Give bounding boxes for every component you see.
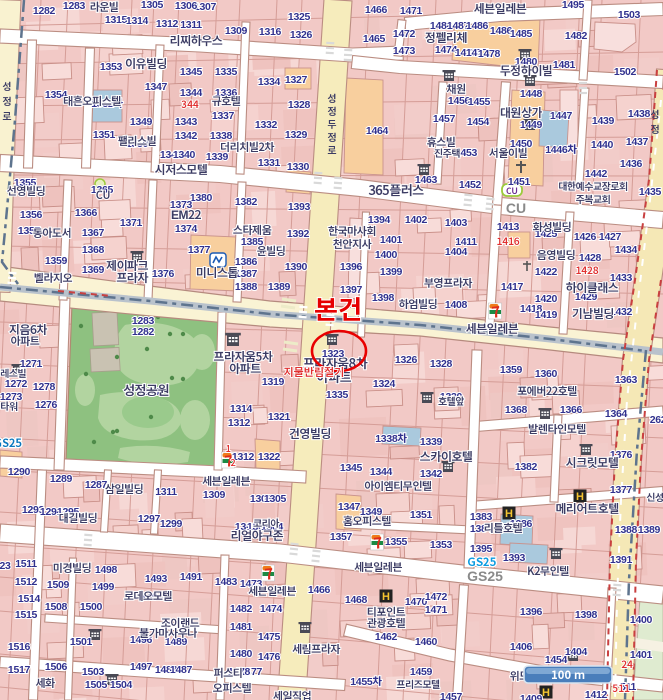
svg-text:2: 2 [230, 456, 235, 469]
svg-text:1311: 1311 [155, 486, 177, 498]
svg-text:1404: 1404 [445, 246, 468, 258]
svg-text:1382: 1382 [235, 196, 258, 208]
svg-text:포에버22호텔: 포에버22호텔 [517, 383, 577, 399]
svg-text:1338차: 1338차 [375, 433, 407, 445]
svg-text:1335: 1335 [326, 389, 349, 401]
svg-text:1393: 1393 [288, 201, 311, 213]
svg-text:1462: 1462 [375, 631, 398, 643]
svg-text:1391: 1391 [610, 554, 633, 566]
svg-text:1417: 1417 [501, 281, 524, 293]
svg-text:아이엠티무인텔: 아이엠티무인텔 [364, 478, 432, 494]
svg-text:프리즈모텔: 프리즈모텔 [396, 676, 440, 691]
svg-text:1464: 1464 [366, 125, 389, 137]
svg-text:홈오피스텔: 홈오피스텔 [343, 513, 391, 529]
svg-text:GS25: GS25 [0, 435, 22, 451]
svg-text:아파트: 아파트 [11, 333, 40, 349]
svg-text:1434: 1434 [615, 244, 638, 256]
svg-text:1408: 1408 [445, 299, 468, 311]
svg-text:1315: 1315 [105, 14, 128, 26]
svg-text:1398: 1398 [575, 609, 598, 621]
svg-text:1482: 1482 [565, 30, 588, 42]
svg-text:팰리스빌: 팰리스빌 [118, 133, 157, 149]
svg-text:주복교회: 주복교회 [576, 191, 611, 206]
svg-text:1364: 1364 [605, 408, 628, 420]
svg-text:1: 1 [225, 442, 230, 455]
svg-text:1349: 1349 [130, 116, 153, 128]
svg-text:1404: 1404 [565, 646, 588, 658]
svg-text:발렌타인모텔: 발렌타인모텔 [528, 421, 586, 437]
svg-text:EM22: EM22 [171, 206, 201, 223]
svg-text:1400: 1400 [630, 614, 653, 626]
svg-text:1483: 1483 [215, 576, 238, 588]
svg-text:신성: 신성 [646, 489, 663, 504]
svg-text:1366: 1366 [75, 207, 98, 219]
svg-text:1438: 1438 [628, 108, 651, 120]
svg-text:1305: 1305 [141, 0, 164, 11]
svg-text:서울이빌: 서울이빌 [489, 145, 528, 161]
svg-text:1366: 1366 [560, 404, 583, 416]
svg-text:1290: 1290 [8, 466, 31, 478]
svg-text:더리치빌2차: 더리치빌2차 [220, 139, 275, 155]
svg-text:1396: 1396 [520, 606, 543, 618]
svg-text:동아도서: 동아도서 [33, 225, 71, 241]
svg-text:스카이호텔: 스카이호텔 [420, 448, 473, 465]
svg-text:1327: 1327 [285, 74, 308, 86]
svg-text:화성빌딩: 화성빌딩 [533, 219, 572, 235]
svg-text:1307: 1307 [194, 1, 217, 13]
svg-text:1466: 1466 [365, 4, 388, 16]
svg-text:511: 511 [612, 680, 629, 695]
svg-text:시저스모텔: 시저스모텔 [154, 161, 208, 178]
svg-text:1328: 1328 [430, 358, 453, 370]
svg-text:1435: 1435 [639, 186, 662, 198]
svg-text:1455: 1455 [468, 96, 491, 108]
svg-text:대길빌딩: 대길빌딩 [59, 510, 98, 526]
svg-text:1448: 1448 [520, 88, 543, 100]
svg-text:세븐일레븐: 세븐일레븐 [202, 473, 250, 489]
svg-text:1474: 1474 [260, 603, 283, 615]
svg-text:1326: 1326 [290, 29, 313, 41]
svg-text:지물반림절기: 지물반림절기 [284, 364, 345, 380]
svg-text:1493: 1493 [145, 573, 168, 585]
svg-text:1305: 1305 [264, 493, 287, 505]
svg-text:시크릿모텔: 시크릿모텔 [565, 454, 619, 471]
svg-text:262: 262 [650, 414, 663, 426]
svg-text:1374: 1374 [175, 223, 198, 235]
svg-text:1485: 1485 [510, 28, 533, 40]
svg-text:1309: 1309 [203, 489, 226, 501]
svg-text:1382: 1382 [515, 461, 538, 473]
svg-text:1426: 1426 [574, 231, 597, 243]
svg-text:1312: 1312 [156, 18, 179, 30]
svg-text:1312: 1312 [228, 417, 251, 429]
svg-text:1314: 1314 [230, 403, 253, 415]
svg-text:1329: 1329 [285, 129, 308, 141]
svg-text:1457: 1457 [433, 113, 456, 125]
svg-text:1416: 1416 [496, 233, 520, 248]
svg-text:1359: 1359 [500, 364, 523, 376]
svg-text:1475: 1475 [258, 631, 281, 643]
svg-text:1353: 1353 [430, 539, 453, 551]
svg-text:1478: 1478 [478, 48, 501, 60]
svg-text:1515: 1515 [15, 609, 38, 621]
svg-text:1398: 1398 [372, 292, 395, 304]
svg-text:성정공원: 성정공원 [123, 380, 169, 399]
svg-text:정: 정 [650, 121, 659, 136]
svg-text:하엄빌딩: 하엄빌딩 [399, 296, 438, 312]
svg-text:1347: 1347 [145, 81, 168, 93]
svg-text:1486: 1486 [466, 20, 489, 32]
svg-text:1371: 1371 [120, 217, 143, 229]
svg-text:1447: 1447 [550, 110, 573, 122]
svg-text:1363: 1363 [615, 374, 638, 386]
svg-text:1388: 1388 [235, 281, 258, 293]
svg-text:1436: 1436 [620, 158, 643, 170]
svg-text:코리아: 코리아 [253, 515, 280, 530]
svg-text:1465: 1465 [363, 33, 386, 45]
svg-text:CU: CU [96, 187, 111, 203]
svg-text:세림프라자: 세림프라자 [292, 641, 341, 657]
svg-text:1427: 1427 [599, 231, 622, 243]
svg-text:1500: 1500 [80, 601, 103, 613]
svg-text:태흔오피스텔: 태흔오피스텔 [63, 93, 121, 109]
svg-text:1482: 1482 [230, 603, 253, 615]
svg-text:1514: 1514 [18, 593, 41, 605]
svg-text:1355: 1355 [385, 536, 408, 548]
svg-text:아파트: 아파트 [229, 360, 261, 377]
svg-text:레스빌: 레스빌 [0, 365, 26, 380]
svg-text:세븐일레븐: 세븐일레븐 [354, 559, 402, 575]
svg-text:1342: 1342 [175, 130, 198, 142]
svg-text:1323: 1323 [322, 348, 345, 360]
svg-text:1337: 1337 [212, 110, 235, 122]
svg-text:불가마사우나: 불가마사우나 [139, 625, 198, 641]
svg-text:1386: 1386 [235, 256, 258, 268]
svg-text:1309: 1309 [225, 25, 248, 37]
svg-text:1289: 1289 [50, 473, 73, 485]
svg-text:1481: 1481 [553, 59, 576, 71]
svg-text:1393: 1393 [503, 552, 526, 564]
svg-text:1476: 1476 [258, 651, 281, 663]
svg-text:1504: 1504 [110, 679, 133, 691]
svg-text:1326: 1326 [395, 354, 418, 366]
svg-text:1357: 1357 [330, 531, 353, 543]
svg-text:메리어트호텔: 메리어트호텔 [555, 500, 619, 517]
svg-text:1502: 1502 [614, 66, 637, 78]
svg-text:1328: 1328 [288, 99, 311, 111]
svg-text:1472: 1472 [393, 28, 416, 40]
svg-text:라운빌: 라운빌 [90, 0, 119, 15]
svg-text:1403: 1403 [445, 217, 468, 229]
svg-text:규호텔: 규호텔 [212, 93, 241, 109]
svg-text:1278: 1278 [33, 381, 56, 393]
svg-text:1282: 1282 [132, 326, 155, 338]
svg-text:24: 24 [621, 656, 633, 671]
svg-text:1347: 1347 [338, 501, 361, 513]
svg-text:1468: 1468 [345, 594, 368, 606]
svg-text:1392: 1392 [287, 228, 310, 240]
svg-text:1517: 1517 [8, 664, 31, 676]
svg-text:1511: 1511 [15, 558, 37, 570]
svg-text:1506: 1506 [45, 661, 68, 673]
svg-text:1480: 1480 [230, 648, 253, 660]
svg-text:1283: 1283 [63, 0, 86, 12]
svg-text:1387: 1387 [235, 268, 258, 280]
svg-text:세븐일레븐: 세븐일레븐 [466, 320, 519, 337]
svg-text:프라자: 프라자 [116, 269, 148, 286]
svg-text:두정하이빌: 두정하이빌 [500, 62, 553, 79]
svg-text:정펠리체: 정펠리체 [425, 29, 468, 46]
svg-text:1297: 1297 [138, 513, 161, 525]
svg-text:1388: 1388 [615, 524, 638, 536]
svg-text:365플러스: 365플러스 [368, 180, 424, 199]
svg-text:이유빌딩: 이유빌딩 [125, 55, 167, 72]
svg-text:1460: 1460 [415, 636, 438, 648]
svg-text:1389: 1389 [268, 281, 291, 293]
svg-text:K2무인텔: K2무인텔 [527, 563, 569, 579]
svg-text:23: 23 [0, 560, 11, 572]
svg-text:1455차: 1455차 [350, 676, 382, 688]
svg-text:대원상가: 대원상가 [500, 104, 544, 121]
svg-text:1471: 1471 [425, 604, 448, 616]
svg-text:1353: 1353 [100, 61, 123, 73]
svg-text:세일직업: 세일직업 [273, 688, 312, 700]
svg-text:1356: 1356 [20, 209, 43, 221]
svg-text:채원: 채원 [445, 81, 466, 97]
svg-text:1481: 1481 [230, 621, 253, 633]
svg-text:1368: 1368 [505, 404, 528, 416]
svg-text:1351: 1351 [93, 129, 116, 141]
svg-text:성: 성 [2, 78, 11, 93]
svg-text:타워: 타워 [0, 398, 18, 413]
svg-text:1332: 1332 [255, 119, 278, 131]
svg-text:1440: 1440 [591, 139, 614, 151]
svg-text:1380: 1380 [190, 192, 213, 204]
svg-text:로: 로 [327, 142, 336, 157]
svg-text:1501: 1501 [70, 636, 93, 648]
svg-text:1345: 1345 [340, 462, 363, 474]
svg-text:정: 정 [2, 93, 11, 108]
svg-text:1319: 1319 [262, 376, 285, 388]
svg-text:1322: 1322 [258, 451, 281, 463]
svg-text:음영빌딩: 음영빌딩 [537, 247, 576, 263]
svg-text:1339: 1339 [420, 436, 443, 448]
svg-text:1276: 1276 [35, 399, 58, 411]
svg-text:1282: 1282 [33, 5, 56, 17]
svg-text:본건: 본건 [314, 290, 362, 327]
svg-text:1406: 1406 [510, 641, 533, 653]
svg-text:1377: 1377 [188, 244, 211, 256]
svg-text:1505: 1505 [85, 679, 108, 691]
svg-text:1330: 1330 [287, 161, 310, 173]
svg-text:1334: 1334 [258, 76, 281, 88]
svg-text:1508: 1508 [45, 601, 68, 613]
svg-text:1396: 1396 [340, 261, 363, 273]
svg-text:리틀호텔: 리틀호텔 [484, 520, 523, 536]
svg-text:기남빌딩: 기남빌딩 [572, 305, 614, 322]
svg-text:1422: 1422 [535, 266, 558, 278]
svg-text:1377: 1377 [610, 484, 633, 496]
svg-text:1516: 1516 [8, 641, 31, 653]
svg-text:1409: 1409 [520, 693, 543, 700]
svg-text:1400: 1400 [375, 249, 398, 261]
svg-text:1457: 1457 [440, 691, 463, 700]
svg-text:1314: 1314 [126, 15, 149, 27]
svg-text:1331: 1331 [258, 157, 281, 169]
svg-text:1491: 1491 [180, 571, 203, 583]
svg-text:1343: 1343 [175, 116, 198, 128]
svg-text:1401: 1401 [630, 649, 653, 661]
svg-text:344: 344 [181, 96, 199, 111]
svg-text:1473: 1473 [393, 45, 416, 57]
svg-text:로: 로 [2, 108, 11, 123]
svg-text:미니스톱: 미니스톱 [196, 264, 239, 281]
svg-text:1503: 1503 [618, 9, 641, 21]
svg-text:1471: 1471 [400, 5, 423, 17]
svg-text:1420: 1420 [535, 293, 558, 305]
svg-text:미경빌딩: 미경빌딩 [53, 560, 92, 576]
svg-text:퍼스티: 퍼스티 [214, 665, 243, 681]
svg-text:1402: 1402 [405, 214, 428, 226]
svg-text:세화: 세화 [35, 675, 55, 691]
svg-text:관광호텔: 관광호텔 [367, 615, 406, 631]
svg-text:1351: 1351 [410, 509, 433, 521]
svg-text:1487: 1487 [170, 664, 193, 676]
svg-text:1399: 1399 [380, 266, 403, 278]
svg-text:하이클래스: 하이클래스 [566, 279, 619, 296]
svg-text:리찌하우스: 리찌하우스 [170, 32, 223, 49]
svg-text:H: H [542, 684, 550, 700]
svg-text:1316: 1316 [259, 26, 282, 38]
svg-text:100 m: 100 m [551, 667, 585, 683]
svg-text:세븐일레븐: 세븐일레븐 [248, 583, 296, 599]
svg-text:1335: 1335 [215, 66, 238, 78]
svg-text:성: 성 [650, 106, 659, 121]
svg-text:1395: 1395 [470, 543, 493, 555]
svg-text:세븐일레븐: 세븐일레븐 [474, 0, 527, 17]
svg-text:1439: 1439 [592, 115, 615, 127]
svg-text:1306: 1306 [175, 0, 198, 12]
svg-text:1340: 1340 [173, 149, 196, 161]
svg-text:오피스텔: 오피스텔 [213, 680, 252, 696]
svg-text:1311: 1311 [180, 19, 202, 31]
svg-text:1369: 1369 [82, 264, 105, 276]
svg-text:1437: 1437 [626, 136, 649, 148]
svg-text:1472: 1472 [425, 591, 448, 603]
svg-text:1413: 1413 [497, 221, 520, 233]
svg-text:GS25: GS25 [467, 568, 503, 584]
svg-text:부영프라자: 부영프라자 [424, 275, 473, 291]
svg-text:1466: 1466 [308, 584, 331, 596]
svg-text:H: H [382, 588, 390, 604]
svg-text:1512: 1512 [15, 576, 38, 588]
svg-text:1428: 1428 [575, 262, 598, 277]
svg-text:1498: 1498 [95, 564, 118, 576]
svg-text:CU: CU [506, 200, 526, 216]
svg-text:건영빌딩: 건영빌딩 [289, 425, 331, 442]
svg-text:1376: 1376 [152, 268, 175, 280]
svg-text:1345: 1345 [180, 66, 203, 78]
svg-text:윤빌딩: 윤빌딩 [257, 243, 286, 259]
svg-text:1367: 1367 [82, 227, 105, 239]
svg-text:1390: 1390 [285, 261, 308, 273]
svg-text:스타제움: 스타제움 [233, 222, 272, 238]
svg-text:로데오모텔: 로데오모텔 [124, 588, 172, 604]
svg-text:1497: 1497 [130, 661, 153, 673]
svg-text:1401: 1401 [380, 234, 403, 246]
svg-text:1452: 1452 [459, 179, 482, 191]
svg-text:1321: 1321 [268, 411, 291, 423]
svg-text:삼일빌딩: 삼일빌딩 [105, 481, 144, 497]
svg-text:1359: 1359 [45, 255, 68, 267]
svg-text:1503: 1503 [82, 666, 105, 678]
svg-text:1495: 1495 [562, 0, 585, 11]
svg-text:1446차: 1446차 [545, 144, 577, 156]
svg-text:1324: 1324 [373, 378, 396, 390]
svg-text:1499: 1499 [92, 581, 115, 593]
svg-text:1454: 1454 [467, 116, 490, 128]
svg-text:1299: 1299 [160, 518, 183, 530]
svg-text:1509: 1509 [47, 579, 70, 591]
svg-text:1454: 1454 [545, 654, 568, 666]
svg-text:선영빌딩: 선영빌딩 [7, 183, 46, 199]
svg-text:1412: 1412 [585, 689, 608, 700]
svg-text:1451: 1451 [508, 176, 531, 188]
svg-text:1325: 1325 [288, 11, 311, 23]
svg-text:천안지사: 천안지사 [333, 236, 373, 252]
svg-text:1389: 1389 [638, 524, 661, 536]
svg-text:진주택: 진주택 [434, 145, 460, 160]
svg-text:1419: 1419 [535, 309, 558, 321]
svg-text:1344: 1344 [370, 466, 393, 478]
svg-text:1368: 1368 [82, 244, 105, 256]
svg-text:1360: 1360 [535, 368, 558, 380]
svg-text:벨라지오: 벨라지오 [34, 270, 73, 286]
svg-text:호텔앞: 호텔앞 [438, 393, 465, 408]
